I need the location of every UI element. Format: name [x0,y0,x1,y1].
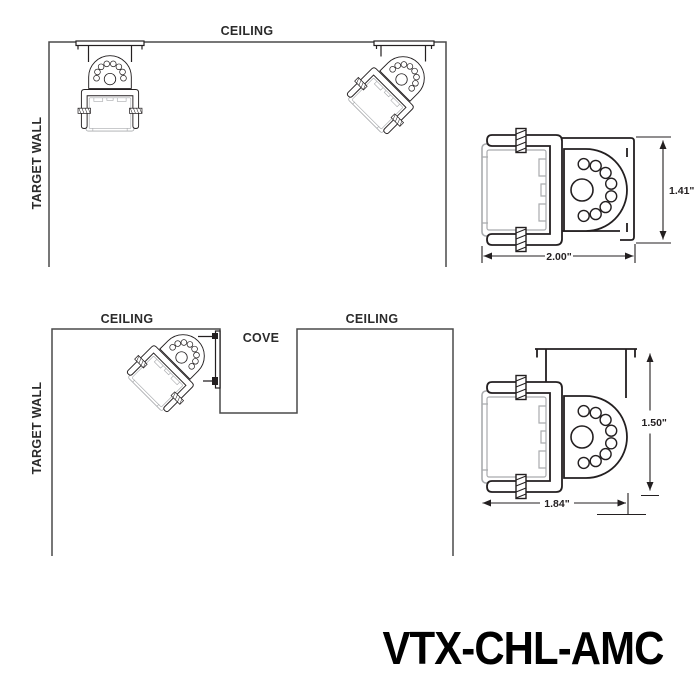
luminaire-cross-section [78,56,142,131]
product-code: VTX-CHL-AMC [383,622,664,674]
width-dimension: 2.00" [546,251,571,263]
fixture-aim-down [76,41,144,131]
technical-drawing: CEILING TARGET WALL CEILING COVE CEILING… [0,0,700,700]
fixture-aim-45 [342,40,441,139]
room-outline [52,329,453,556]
cove-label: COVE [243,331,280,345]
ceiling-label: CEILING [221,24,274,38]
target-wall-label: TARGET WALL [30,117,44,210]
luminaire-cross-section [482,129,627,252]
luminaire-cross-section [482,376,627,499]
height-dimension: 1.50" [642,417,667,429]
fixture-cove [122,318,221,417]
target-wall-label: TARGET WALL [30,382,44,475]
spec-sheet: CEILING TARGET WALL CEILING COVE CEILING… [0,0,700,700]
fixture-detail-hat: 1.50" 1.84" [482,349,667,515]
height-dimension: 1.41" [669,185,694,197]
width-dimension: 1.84" [544,498,569,510]
fixture-detail-flush: 1.41" 2.00" [482,129,694,264]
ceiling-mount-diagram: CEILING TARGET WALL [30,24,446,267]
ceiling-left-label: CEILING [101,312,154,326]
ceiling-right-label: CEILING [346,312,399,326]
luminaire-cross-section [122,318,221,417]
cove-mount-diagram: CEILING COVE CEILING TARGET WALL [30,312,453,556]
